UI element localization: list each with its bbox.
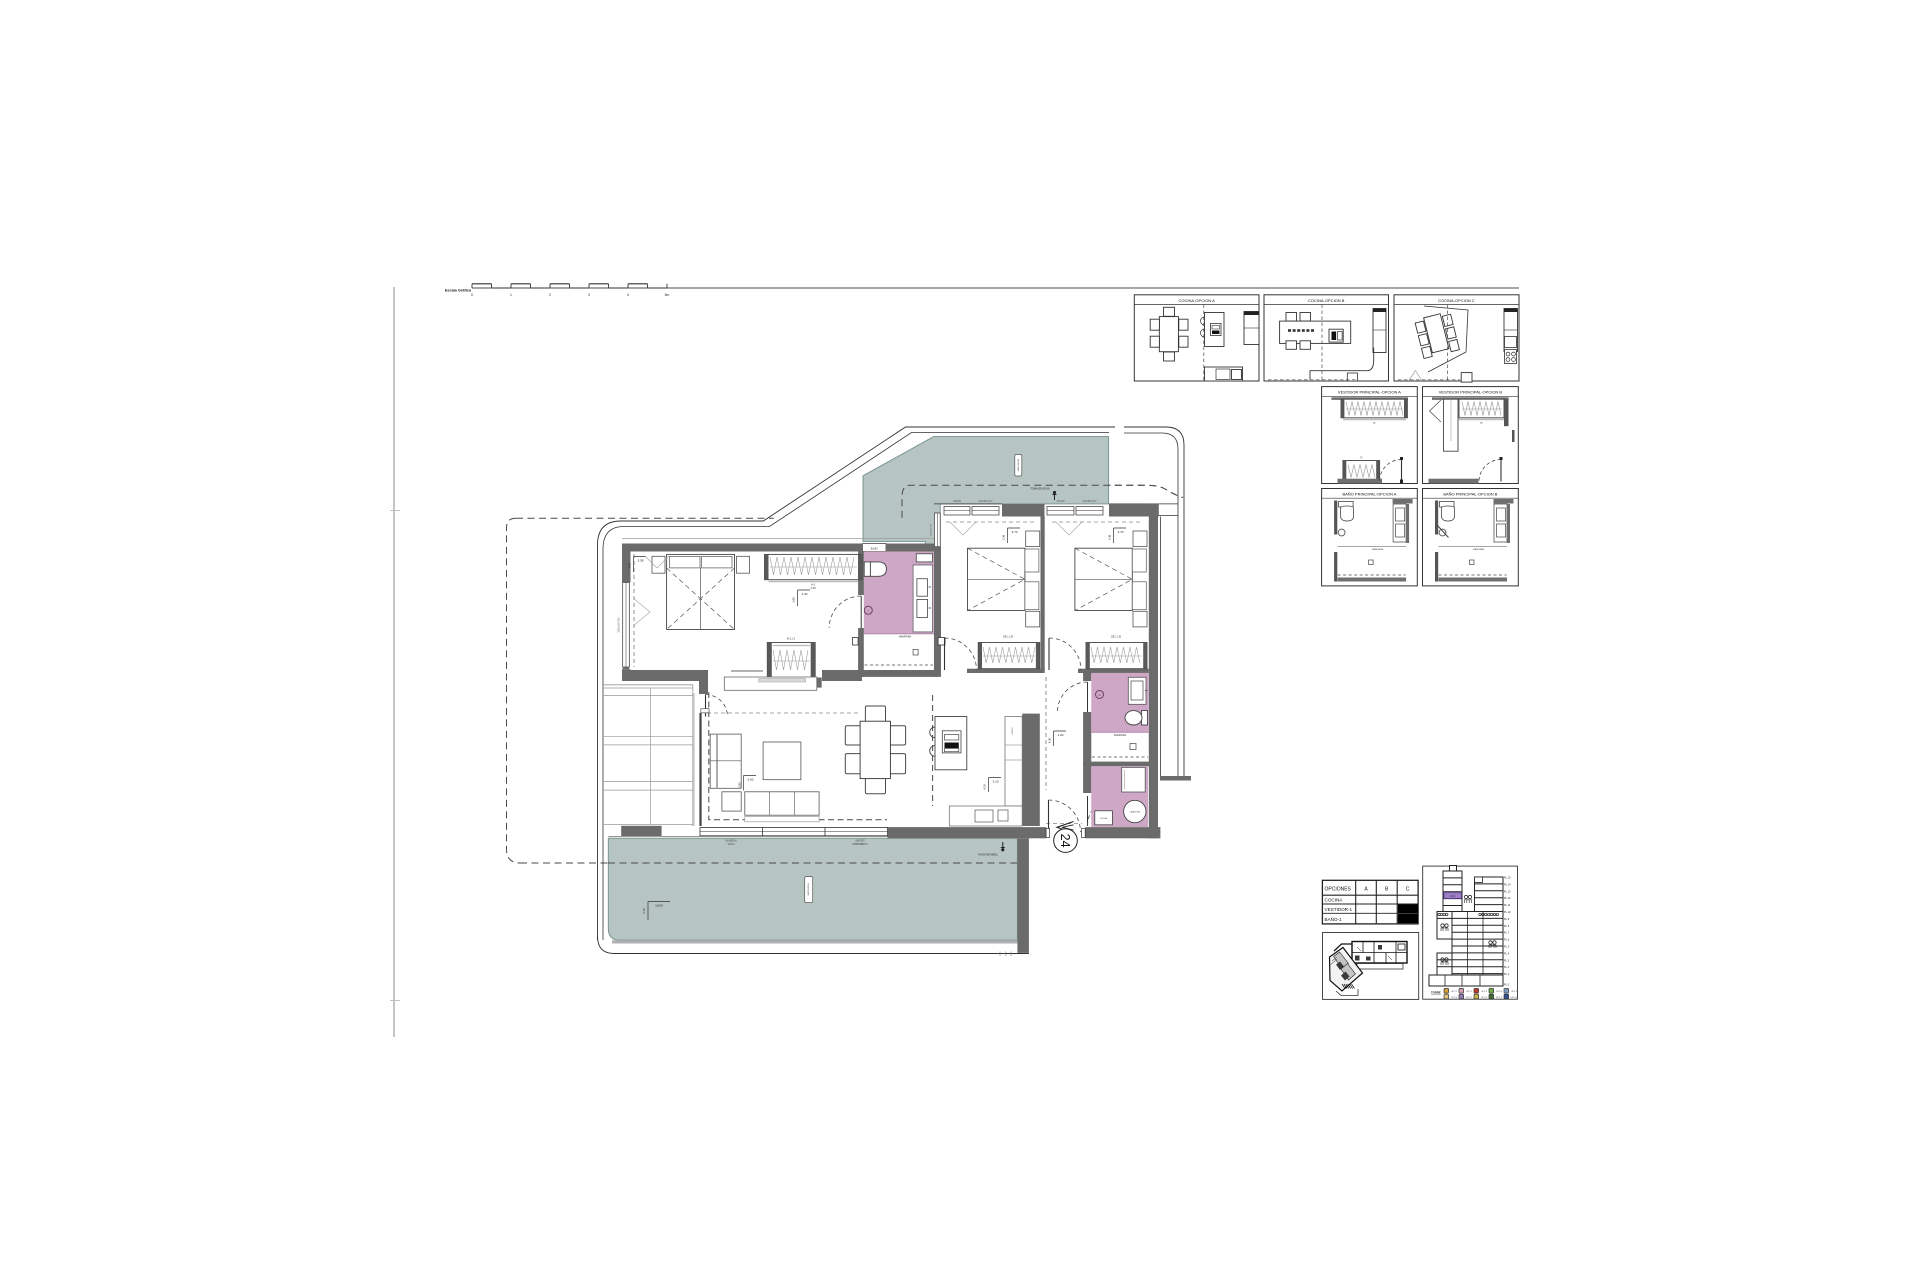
svg-text:PL.4: PL.4 [1504, 952, 1510, 955]
svg-text:4.30: 4.30 [1048, 737, 1052, 743]
svg-text:0: 0 [471, 293, 473, 297]
svg-text:PL.12: PL.12 [1504, 897, 1511, 900]
svg-text:OPC.5: OPC.5 [1511, 991, 1518, 993]
svg-text:COCINA-OPCION B: COCINA-OPCION B [1308, 298, 1345, 303]
svg-text:MAMPARA: MAMPARA [899, 636, 912, 639]
svg-text:PL.13: PL.13 [1504, 890, 1511, 893]
svg-text:235x240: 235x240 [855, 839, 865, 842]
svg-text:PL.15: PL.15 [1504, 877, 1511, 880]
svg-text:BAÑO PRINCIPAL-OPCION B: BAÑO PRINCIPAL-OPCION B [1443, 492, 1497, 497]
svg-text:230x80: 230x80 [1057, 500, 1066, 503]
svg-text:TOMA DE AGUA: TOMA DE AGUA [1030, 487, 1050, 491]
svg-text:2.28: 2.28 [810, 586, 816, 590]
svg-text:PL.5: PL.5 [1504, 946, 1510, 949]
svg-text:OPCIONES: OPCIONES [1325, 887, 1352, 893]
svg-text:PL.0: PL.0 [1504, 984, 1510, 987]
svg-text:1.20: 1.20 [1058, 733, 1064, 737]
svg-text:B-1 2.2: B-1 2.2 [787, 638, 796, 641]
svg-text:PL.11: PL.11 [1504, 904, 1511, 907]
svg-text:JARDINERA: JARDINERA [807, 883, 810, 896]
svg-text:230x80 FIJO: 230x80 FIJO [1083, 500, 1097, 503]
svg-text:PUERTAS: PUERTAS [725, 839, 736, 842]
svg-text:2.40: 2.40 [802, 592, 808, 596]
svg-text:4: 4 [627, 293, 629, 297]
svg-text:BAÑO-1: BAÑO-1 [1325, 916, 1343, 922]
svg-text:PL.10: PL.10 [1504, 911, 1511, 914]
svg-text:OPC.7: OPC.7 [1466, 997, 1473, 999]
svg-text:3: 3 [588, 293, 590, 297]
svg-text:COCINA-OPCION C: COCINA-OPCION C [1438, 298, 1475, 303]
svg-text:FRIGO: FRIGO [1012, 727, 1014, 734]
svg-text:3.36: 3.36 [1108, 534, 1112, 540]
svg-text:CORREDERA: CORREDERA [852, 842, 868, 845]
svg-text:1: 1 [510, 293, 512, 297]
svg-text:COCINA-OPCION A: COCINA-OPCION A [1179, 298, 1216, 303]
svg-text:DUCHA: DUCHA [1100, 817, 1108, 820]
svg-text:OPC.8: OPC.8 [1481, 997, 1488, 999]
svg-text:FIJOS: FIJOS [727, 842, 734, 845]
svg-text:3.10: 3.10 [993, 780, 999, 784]
svg-text:OE1 1.30: OE1 1.30 [1111, 636, 1122, 639]
svg-text:VESTIDOR PRINCIPAL-OPCION B: VESTIDOR PRINCIPAL-OPCION B [1439, 390, 1503, 395]
svg-text:2.70: 2.70 [1118, 530, 1124, 534]
svg-text:JARDINERA: JARDINERA [1017, 459, 1020, 472]
svg-text:250x130 FIJO: 250x130 FIJO [618, 617, 621, 632]
svg-text:OPC.4: OPC.4 [1496, 991, 1503, 993]
svg-text:2.70: 2.70 [642, 908, 646, 914]
svg-text:PL.14: PL.14 [1504, 883, 1511, 886]
svg-text:1.60: 1.60 [792, 597, 796, 603]
svg-text:VESTIDOR-1: VESTIDOR-1 [1325, 907, 1353, 912]
svg-text:230x80: 230x80 [953, 500, 962, 503]
svg-text:PL.1: PL.1 [1504, 973, 1510, 976]
svg-text:PL.7: PL.7 [1504, 932, 1510, 935]
svg-text:OE1 1.30: OE1 1.30 [1003, 636, 1014, 639]
svg-text:PL.9: PL.9 [1504, 918, 1510, 921]
svg-text:MAMPARA: MAMPARA [1473, 548, 1484, 551]
svg-text:3.90: 3.90 [738, 782, 742, 788]
svg-text:LAVADORA: LAVADORA [1130, 811, 1141, 814]
svg-text:4.20: 4.20 [983, 784, 987, 790]
svg-text:OPC.2: OPC.2 [1466, 991, 1473, 993]
svg-text:24ºA: 24ºA [1450, 894, 1456, 898]
svg-text:2: 2 [549, 293, 551, 297]
svg-text:MAMPARA: MAMPARA [1372, 548, 1383, 551]
svg-text:5m: 5m [665, 293, 670, 297]
svg-text:OPC.10: OPC.10 [1510, 997, 1518, 999]
svg-text:OPC.1: OPC.1 [1451, 991, 1458, 993]
svg-text:PL.6: PL.6 [1504, 939, 1510, 942]
svg-text:3.58: 3.58 [638, 559, 644, 563]
svg-text:3.36: 3.36 [1002, 534, 1006, 540]
svg-text:OPC.9: OPC.9 [1496, 997, 1503, 999]
svg-text:2.70: 2.70 [1012, 530, 1018, 534]
svg-text:PL.8: PL.8 [1504, 925, 1510, 928]
svg-text:90x60: 90x60 [871, 547, 878, 550]
svg-text:PL.3: PL.3 [1504, 959, 1510, 962]
svg-text:BAÑO PRINCIPAL-OPCION A: BAÑO PRINCIPAL-OPCION A [1342, 492, 1396, 497]
svg-text:230x50 FIJO: 230x50 FIJO [931, 523, 933, 536]
svg-text:5.00: 5.00 [748, 778, 754, 782]
svg-text:PL.2: PL.2 [1504, 966, 1510, 969]
svg-text:OPC.6: OPC.6 [1451, 997, 1458, 999]
svg-text:230x80 FIJO: 230x80 FIJO [979, 500, 993, 503]
svg-text:VESTIDOR PRINCIPAL-OPCION A: VESTIDOR PRINCIPAL-OPCION A [1338, 390, 1401, 395]
svg-text:COCINA: COCINA [1325, 898, 1344, 903]
svg-text:OPC.3: OPC.3 [1481, 991, 1488, 993]
svg-text:MAMPARA: MAMPARA [1114, 734, 1127, 737]
svg-text:3.06: 3.06 [628, 563, 632, 569]
svg-text:C: C [1406, 887, 1410, 893]
svg-text:24: 24 [1058, 834, 1072, 848]
svg-text:10.00: 10.00 [655, 904, 663, 908]
svg-text:Escala Gráfica: Escala Gráfica [445, 288, 472, 292]
svg-text:TORRE: TORRE [1431, 991, 1441, 995]
svg-text:TOMA DE AGUA: TOMA DE AGUA [978, 853, 998, 857]
